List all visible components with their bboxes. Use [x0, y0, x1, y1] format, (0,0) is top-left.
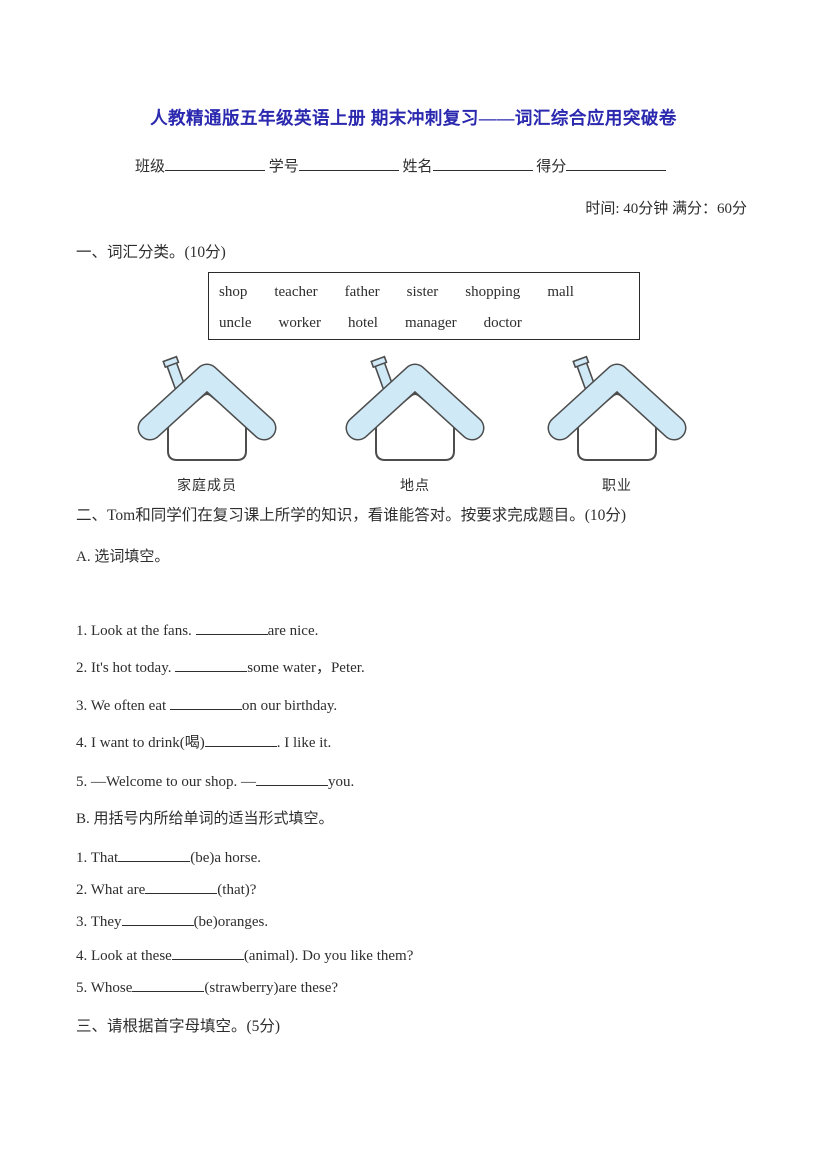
- category-label: 职业: [542, 475, 692, 495]
- word: manager: [405, 315, 457, 332]
- exam-paper-page: 人教精通版五年级英语上册 期末冲刺复习——词汇综合应用突破卷 班级 学号 姓名 …: [0, 0, 827, 1169]
- section2-partA-heading: A. 选词填空。: [76, 545, 169, 566]
- question-a5: 5. —Welcome to our shop. —you.: [76, 771, 354, 791]
- answer-blank: [145, 879, 217, 894]
- word: teacher: [274, 284, 317, 301]
- answer-blank: [172, 945, 244, 960]
- section1-heading: 一、词汇分类。(10分): [76, 240, 226, 262]
- word: worker: [278, 315, 320, 332]
- word-bank-row1: shop teacher father sister shopping mall: [219, 277, 629, 308]
- answer-blank: [132, 977, 204, 992]
- question-b4: 4. Look at these(animal). Do you like th…: [76, 945, 413, 965]
- answer-blank: [256, 771, 328, 786]
- word: uncle: [219, 315, 251, 332]
- category-house-family: 家庭成员: [132, 348, 282, 495]
- answer-blank: [118, 847, 190, 862]
- word: father: [345, 284, 380, 301]
- word: doctor: [484, 315, 522, 332]
- house-icon: [132, 348, 282, 466]
- word: shop: [219, 284, 247, 301]
- class-blank: [165, 155, 265, 171]
- question-b3: 3. They(be)oranges.: [76, 911, 268, 931]
- class-label: 班级: [135, 155, 165, 176]
- answer-blank: [122, 911, 194, 926]
- question-a1: 1. Look at the fans. are nice.: [76, 620, 318, 640]
- student-no-blank: [299, 155, 399, 171]
- question-b2: 2. What are(that)?: [76, 879, 256, 899]
- word: hotel: [348, 315, 378, 332]
- time-score-line: 时间: 40分钟 满分：60分: [585, 197, 747, 218]
- category-house-places: 地点: [340, 348, 490, 495]
- section3-heading: 三、请根据首字母填空。(5分): [76, 1014, 280, 1036]
- word-bank-box: shop teacher father sister shopping mall…: [208, 272, 640, 340]
- word: sister: [407, 284, 439, 301]
- name-label: 姓名: [403, 155, 433, 176]
- page-title: 人教精通版五年级英语上册 期末冲刺复习——词汇综合应用突破卷: [0, 105, 827, 130]
- word: shopping: [465, 284, 520, 301]
- answer-blank: [175, 657, 247, 672]
- score-blank: [566, 155, 666, 171]
- category-house-jobs: 职业: [542, 348, 692, 495]
- name-blank: [433, 155, 533, 171]
- question-a4: 4. I want to drink(喝). I like it.: [76, 731, 331, 752]
- answer-blank: [170, 695, 242, 710]
- question-b5: 5. Whose(strawberry)are these?: [76, 977, 338, 997]
- student-no-label: 学号: [269, 155, 299, 176]
- section2-partB-heading: B. 用括号内所给单词的适当形式填空。: [76, 807, 334, 828]
- category-label: 家庭成员: [132, 475, 282, 495]
- question-a2: 2. It's hot today. some water，Peter.: [76, 656, 365, 677]
- house-icon: [542, 348, 692, 466]
- house-icon: [340, 348, 490, 466]
- word-bank-row2: uncle worker hotel manager doctor: [219, 308, 629, 339]
- score-label: 得分: [536, 155, 566, 176]
- category-label: 地点: [340, 475, 490, 495]
- question-b1: 1. That(be)a horse.: [76, 847, 261, 867]
- word: mall: [547, 284, 574, 301]
- section2-heading: 二、Tom和同学们在复习课上所学的知识，看谁能答对。按要求完成题目。(10分): [76, 503, 626, 525]
- answer-blank: [205, 732, 277, 747]
- question-a3: 3. We often eat on our birthday.: [76, 695, 337, 715]
- student-info-line: 班级 学号 姓名 得分: [135, 155, 666, 176]
- answer-blank: [196, 620, 268, 635]
